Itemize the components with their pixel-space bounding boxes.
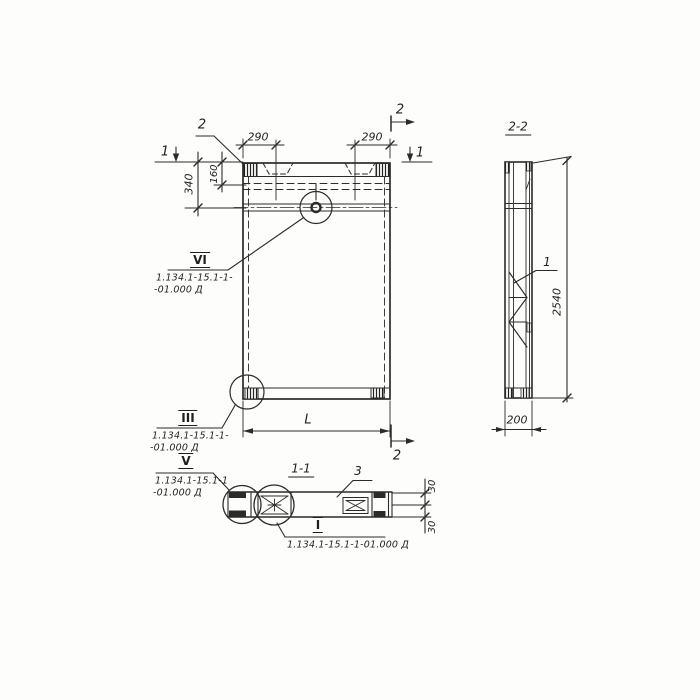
dim-30-bottom: 30 xyxy=(428,521,438,534)
section-marker-2-bottom-label: 2 xyxy=(393,450,401,463)
item-callout-2-label: 2 xyxy=(198,119,206,132)
dim-200: 200 xyxy=(507,415,528,426)
drawing-linework xyxy=(0,0,700,700)
section-marker-1-left-label: 1 xyxy=(161,146,169,159)
dim-290-left: 290 xyxy=(248,132,269,143)
detail-v-ref-line1: 1.134.1-15.1-1 xyxy=(155,476,228,486)
detail-iii-numeral: III xyxy=(178,410,197,426)
dim-L: L xyxy=(304,414,311,427)
section-marker-1-right-label: 1 xyxy=(416,147,424,160)
section-1-1-title: 1-1 xyxy=(288,463,314,478)
detail-i-numeral: I xyxy=(313,517,323,533)
detail-v-numeral: V xyxy=(178,453,193,469)
section-2-2-title: 2-2 xyxy=(505,121,531,136)
detail-iii-ref-line1: 1.134.1-15.1-1- xyxy=(152,431,229,441)
detail-v-ref-line2: -01.000 Д xyxy=(153,488,202,498)
dim-340: 340 xyxy=(184,174,195,195)
dim-160: 160 xyxy=(210,164,220,183)
dim-2540: 2540 xyxy=(552,288,563,316)
detail-vi-ref-line1: 1.134.1-15.1-1- xyxy=(156,273,233,283)
dim-30-top: 30 xyxy=(428,480,438,493)
item-callout-3-label: 3 xyxy=(354,465,362,477)
detail-iii-ref-line2: -01.000 Д xyxy=(150,443,199,453)
detail-vi-ref-line2: -01.000 Д xyxy=(154,285,203,295)
dim-290-right: 290 xyxy=(362,132,383,143)
section-marker-2-top-label: 2 xyxy=(396,104,404,117)
detail-i-ref-line1: 1.134.1-15.1-1-01.000 Д xyxy=(287,540,409,550)
item-callout-1-label: 1 xyxy=(543,256,551,268)
blueprint-canvas: 2 290 290 1 1 2 2 340 160 VI 1.134.1-15.… xyxy=(0,0,700,700)
detail-vi-numeral: VI xyxy=(190,252,210,268)
